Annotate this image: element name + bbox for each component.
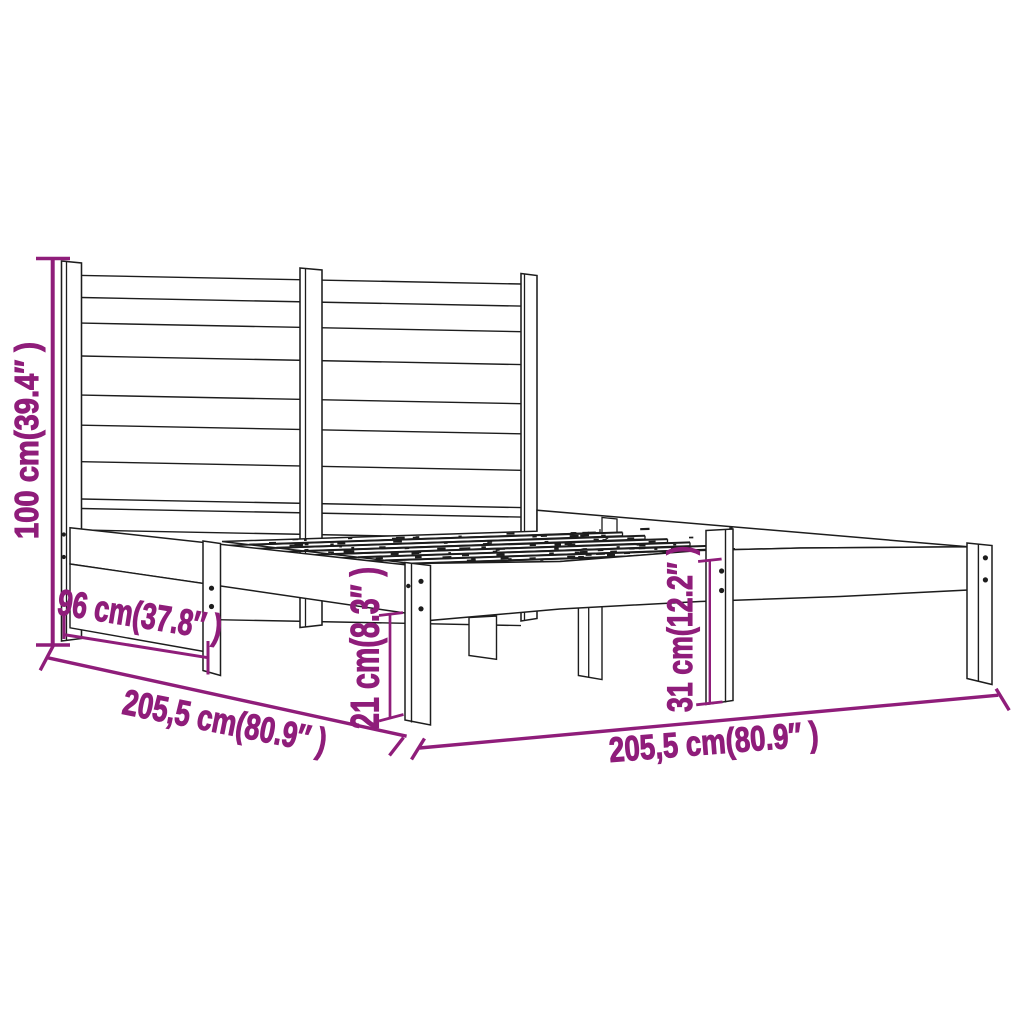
svg-text:100 cm(39.4″ ): 100 cm(39.4″ ) bbox=[8, 342, 45, 539]
svg-text:31 cm(12.2″ ): 31 cm(12.2″ ) bbox=[661, 546, 700, 712]
svg-text:21 cm(8.3″ ): 21 cm(8.3″ ) bbox=[344, 567, 388, 729]
